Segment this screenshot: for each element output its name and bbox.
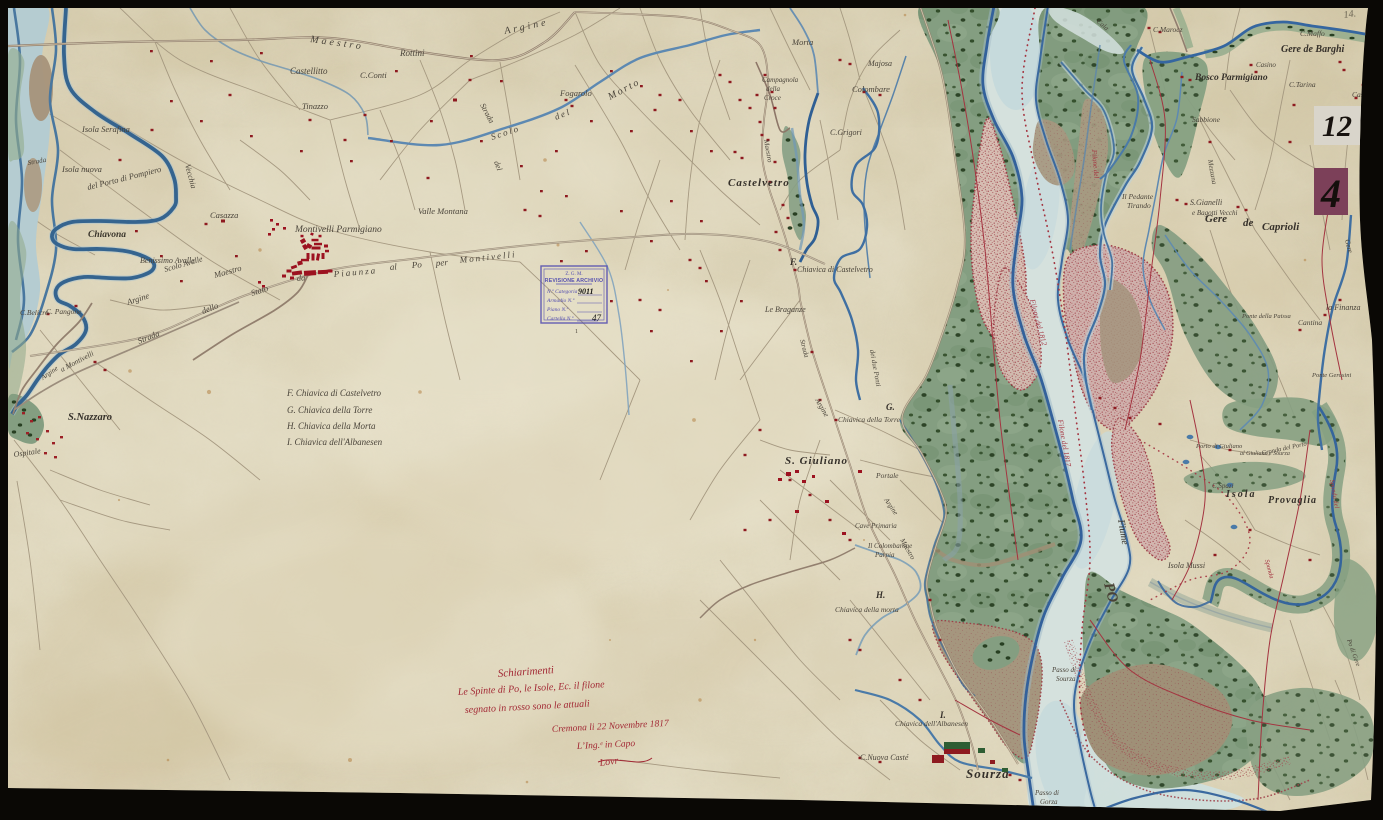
svg-text:H. Chiavica della Morta: H. Chiavica della Morta bbox=[286, 421, 376, 431]
svg-text:Gere: Gere bbox=[1205, 213, 1227, 225]
svg-text:47: 47 bbox=[592, 313, 602, 323]
svg-text:Colombare: Colombare bbox=[852, 84, 890, 94]
svg-text:al Giuliano e Sourza: al Giuliano e Sourza bbox=[1240, 451, 1290, 457]
svg-text:Ponte della Paissa: Ponte della Paissa bbox=[1241, 313, 1291, 320]
svg-text:da: da bbox=[296, 272, 305, 283]
svg-text:de: de bbox=[1243, 217, 1254, 229]
svg-text:S.Gianelli: S.Gianelli bbox=[1190, 198, 1222, 207]
svg-text:per: per bbox=[434, 257, 448, 268]
svg-text:Sourza: Sourza bbox=[1056, 675, 1076, 683]
svg-text:Sourza: Sourza bbox=[966, 766, 1010, 781]
svg-text:C.Tarina: C.Tarina bbox=[1289, 80, 1316, 89]
svg-text:N.º Categoria: N.º Categoria bbox=[546, 289, 578, 295]
svg-text:Parnia: Parnia bbox=[874, 551, 895, 559]
svg-text:Bosco Parmigiano: Bosco Parmigiano bbox=[1194, 73, 1268, 83]
svg-text:Portale: Portale bbox=[875, 471, 899, 480]
svg-text:Armadio N.º: Armadio N.º bbox=[546, 298, 575, 304]
svg-text:Provaglia: Provaglia bbox=[1268, 495, 1317, 506]
svg-text:Cantina: Cantina bbox=[1298, 318, 1322, 327]
svg-text:Valle Montana: Valle Montana bbox=[418, 206, 468, 216]
svg-text:Gere de Barghi: Gere de Barghi bbox=[1281, 44, 1345, 55]
svg-text:Piano N.º: Piano N.º bbox=[546, 307, 569, 313]
svg-text:Chiavica della Torre: Chiavica della Torre bbox=[838, 415, 901, 424]
svg-text:Castelvetro: Castelvetro bbox=[728, 177, 790, 189]
svg-text:1: 1 bbox=[575, 329, 578, 335]
svg-text:12: 12 bbox=[1322, 110, 1352, 143]
svg-text:9011: 9011 bbox=[578, 287, 594, 296]
svg-text:Isola: Isola bbox=[1225, 489, 1257, 500]
svg-text:Z. G. M.: Z. G. M. bbox=[565, 272, 582, 277]
svg-text:della: della bbox=[766, 85, 780, 93]
svg-text:Tirando: Tirando bbox=[1127, 201, 1151, 210]
svg-text:Passo di: Passo di bbox=[1051, 666, 1076, 674]
svg-text:Il Pedante: Il Pedante bbox=[1121, 192, 1154, 201]
svg-text:al: al bbox=[389, 261, 397, 271]
svg-text:F.: F. bbox=[789, 257, 797, 267]
svg-text:Sabbione: Sabbione bbox=[1192, 115, 1221, 124]
svg-text:C. Pangone: C. Pangone bbox=[46, 307, 82, 316]
svg-text:Croce: Croce bbox=[764, 94, 781, 102]
svg-text:I. Chiavica dell'Albanesen: I. Chiavica dell'Albanesen bbox=[286, 437, 383, 447]
svg-text:Campagnola: Campagnola bbox=[762, 76, 799, 84]
svg-text:Cave Primaria: Cave Primaria bbox=[855, 522, 897, 530]
svg-text:Chiavica di Castelvetro: Chiavica di Castelvetro bbox=[797, 265, 873, 274]
svg-text:F. Chiavica di Castelvetro: F. Chiavica di Castelvetro bbox=[286, 388, 381, 398]
svg-text:Tinazzo: Tinazzo bbox=[302, 101, 328, 111]
svg-text:S. Giuliano: S. Giuliano bbox=[785, 455, 848, 467]
svg-text:Rottini: Rottini bbox=[399, 48, 425, 58]
svg-text:C.Nuova Casté: C.Nuova Casté bbox=[860, 753, 909, 762]
svg-text:C.Maffo: C.Maffo bbox=[1300, 29, 1325, 38]
svg-text:Castellitto: Castellitto bbox=[290, 66, 328, 76]
svg-text:Casino: Casino bbox=[1256, 61, 1276, 69]
svg-text:Gorza: Gorza bbox=[1040, 798, 1058, 806]
svg-text:la Finanza: la Finanza bbox=[1326, 303, 1360, 312]
svg-text:G. Chiavica della Torre: G. Chiavica della Torre bbox=[287, 405, 372, 415]
svg-text:C.Conti: C.Conti bbox=[360, 70, 387, 80]
svg-text:Fogarolo: Fogarolo bbox=[559, 88, 592, 98]
svg-text:4: 4 bbox=[1320, 171, 1341, 216]
svg-text:Il Colombarone: Il Colombarone bbox=[867, 542, 912, 550]
svg-text:Chiavona: Chiavona bbox=[88, 230, 126, 240]
svg-text:Montivelli Parmigiano: Montivelli Parmigiano bbox=[294, 225, 382, 235]
svg-text:14.: 14. bbox=[1343, 8, 1357, 21]
svg-text:C.Spazi: C.Spazi bbox=[1212, 482, 1234, 490]
svg-text:REVISIONE ARCHIVIO: REVISIONE ARCHIVIO bbox=[545, 278, 603, 284]
svg-text:C.Marocz: C.Marocz bbox=[1153, 25, 1183, 34]
svg-text:Caprioli: Caprioli bbox=[1262, 221, 1300, 233]
svg-text:G.: G. bbox=[886, 402, 895, 412]
svg-text:S.Nazzaro: S.Nazzaro bbox=[68, 412, 112, 423]
svg-text:Le Braganze: Le Braganze bbox=[764, 305, 806, 314]
svg-text:H.: H. bbox=[875, 590, 885, 600]
svg-text:Isola Serafina: Isola Serafina bbox=[81, 124, 130, 134]
svg-text:Isola Mussi: Isola Mussi bbox=[1167, 561, 1205, 570]
svg-text:Ponte Gerosini: Ponte Gerosini bbox=[1311, 372, 1351, 379]
svg-text:Morta: Morta bbox=[791, 37, 813, 47]
svg-text:Passo di: Passo di bbox=[1034, 789, 1059, 797]
svg-text:Chiavica della morta: Chiavica della morta bbox=[835, 605, 899, 614]
svg-text:C.Belicro: C.Belicro bbox=[20, 308, 49, 317]
svg-text:Porto di Giuliano: Porto di Giuliano bbox=[1195, 443, 1243, 450]
svg-text:Cartella N.º: Cartella N.º bbox=[547, 316, 574, 322]
svg-text:Po: Po bbox=[410, 259, 422, 270]
svg-text:C.Grigori: C.Grigori bbox=[830, 128, 862, 137]
svg-text:Chiavica dell'Albanesen: Chiavica dell'Albanesen bbox=[895, 719, 968, 728]
svg-text:Majosa: Majosa bbox=[867, 59, 892, 68]
svg-text:Casazza: Casazza bbox=[210, 210, 238, 220]
svg-text:Isola nuova: Isola nuova bbox=[61, 164, 102, 174]
